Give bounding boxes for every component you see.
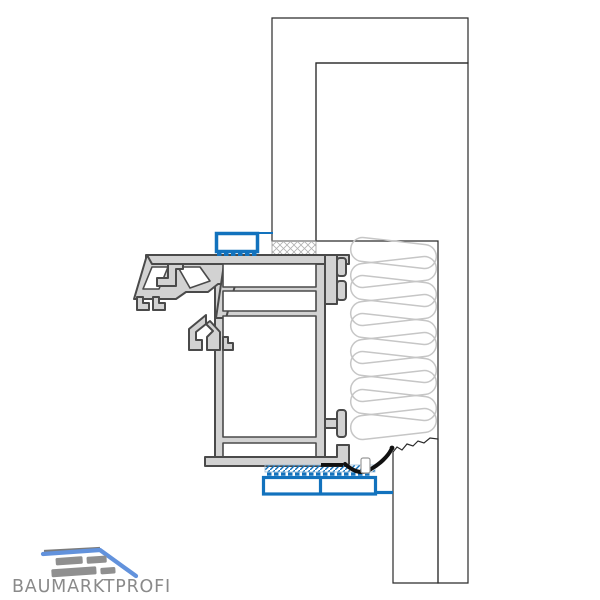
insulation-loop — [349, 407, 437, 441]
exterior-plaster-layer — [272, 18, 468, 241]
tape-dash — [302, 473, 307, 476]
tape-dash — [323, 473, 328, 476]
membrane-clip — [361, 458, 370, 473]
tape-dash — [267, 473, 272, 476]
technical-drawing-canvas: BAUMARKTPROFI — [0, 0, 600, 600]
insulation-loop — [349, 312, 437, 346]
tape-dashes — [267, 473, 370, 476]
logo-wordmark: BAUMARKTPROFI — [12, 577, 171, 597]
tape-dash — [309, 473, 314, 476]
tape-dash — [316, 473, 321, 476]
insulation-loop — [349, 350, 437, 384]
insulation-loop — [349, 369, 437, 403]
logo-text-blur — [50, 554, 115, 578]
sill-connection-profile — [264, 477, 394, 494]
tape-dash — [295, 473, 300, 476]
tape-dash — [330, 473, 335, 476]
plaster-bottom-strip — [393, 438, 438, 583]
mortar-joint — [272, 241, 316, 256]
tape-dash — [281, 473, 286, 476]
tape-dash — [337, 473, 342, 476]
section-drawing: BAUMARKTPROFI — [0, 0, 600, 600]
joint-insulation — [349, 236, 437, 441]
tape-dash — [351, 473, 356, 476]
insulation-loop — [349, 293, 437, 327]
pvc-window-frame-profile — [134, 255, 349, 466]
insulation-loop — [349, 274, 437, 308]
tape-dash — [288, 473, 293, 476]
top-connection-profile — [217, 233, 274, 256]
baumarktprofi-logo: BAUMARKTPROFI — [12, 548, 171, 597]
insulation-loop — [349, 255, 437, 289]
logo-roof-icon — [43, 548, 136, 578]
tape-dash — [274, 473, 279, 476]
insulation-loop — [349, 388, 437, 422]
insulation-loop — [349, 331, 437, 365]
tape-dash — [344, 473, 349, 476]
